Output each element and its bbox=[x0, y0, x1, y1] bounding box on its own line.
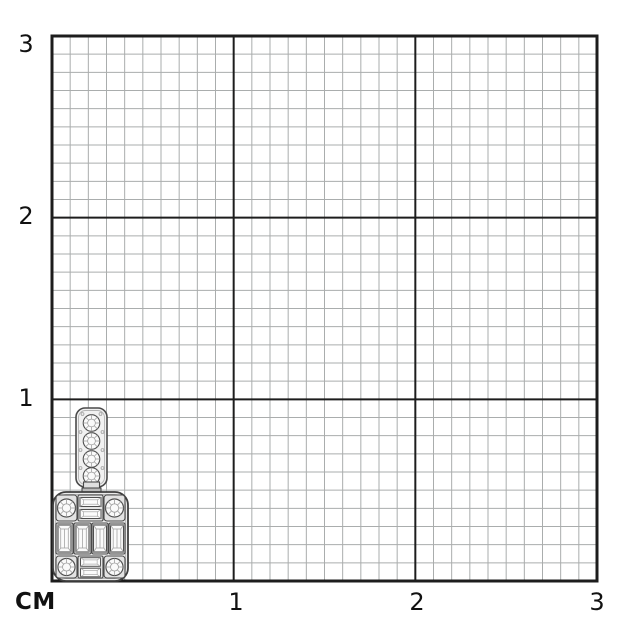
baguette-diamond-horizontal bbox=[80, 510, 101, 519]
unit-label: СМ bbox=[15, 588, 63, 616]
round-diamond bbox=[83, 451, 100, 468]
baguette-diamond-vertical bbox=[111, 525, 124, 552]
round-diamond bbox=[106, 499, 124, 517]
baguette-diamond-vertical bbox=[76, 525, 89, 552]
pendant-head bbox=[53, 492, 128, 581]
baguette-diamond-horizontal bbox=[80, 498, 101, 507]
round-diamond bbox=[58, 558, 75, 575]
measurement-photo-canvas: 3 2 1 1 2 3 СМ bbox=[0, 0, 640, 640]
x-axis-tick-2: 2 bbox=[397, 588, 437, 616]
x-axis-tick-3: 3 bbox=[577, 588, 617, 616]
round-diamond bbox=[83, 433, 100, 450]
y-axis-tick-3: 3 bbox=[6, 30, 46, 58]
round-diamond bbox=[106, 558, 123, 575]
y-axis-tick-1: 1 bbox=[6, 384, 46, 412]
baguette-diamond-horizontal bbox=[81, 558, 101, 567]
x-axis-tick-1: 1 bbox=[216, 588, 256, 616]
pendant-bail bbox=[76, 408, 107, 487]
round-diamond bbox=[83, 415, 100, 432]
baguette-diamond-horizontal bbox=[81, 568, 101, 577]
baguette-diamond-vertical bbox=[58, 525, 71, 552]
baguette-diamond-vertical bbox=[94, 525, 107, 552]
y-axis-tick-2: 2 bbox=[6, 202, 46, 230]
pendant-image bbox=[49, 404, 132, 583]
round-diamond bbox=[58, 499, 76, 517]
